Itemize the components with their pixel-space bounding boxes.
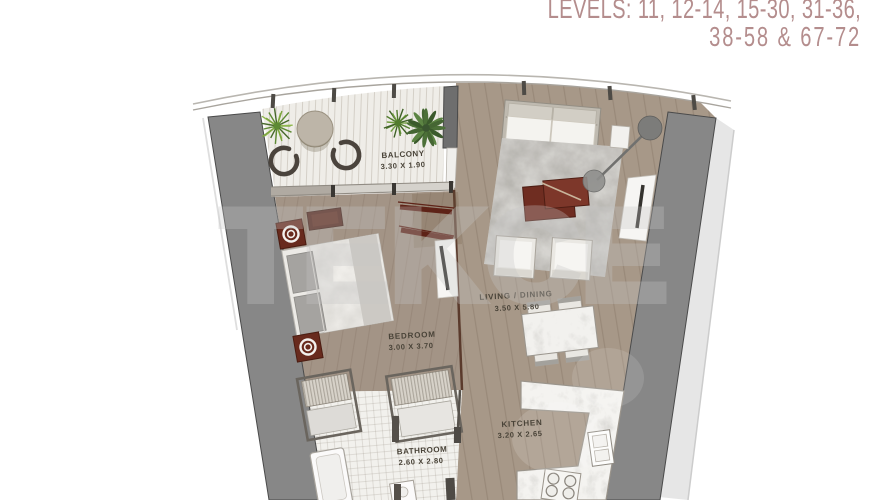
svg-text:TEKCE: TEKCE bbox=[221, 182, 669, 328]
svg-text:38-58 & 67-72: 38-58 & 67-72 bbox=[709, 22, 861, 53]
